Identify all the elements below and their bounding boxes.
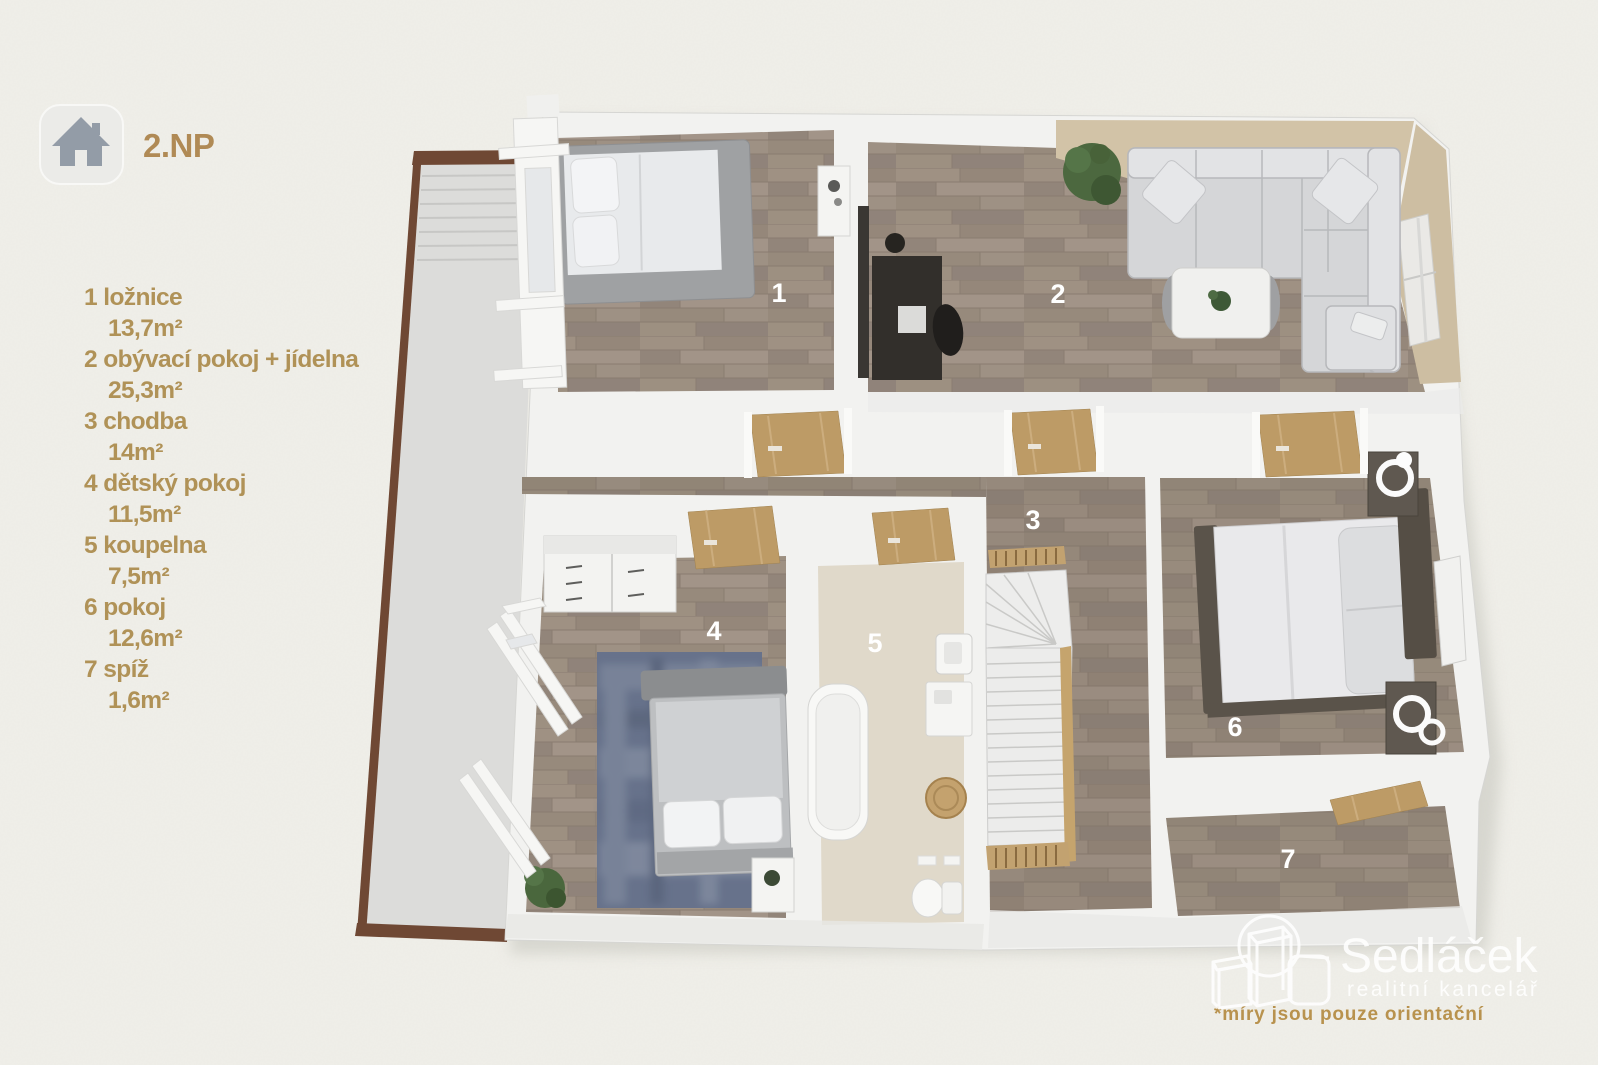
svg-text:6 pokoj: 6 pokoj: [84, 594, 166, 621]
svg-text:11,5m²: 11,5m²: [108, 501, 181, 528]
svg-text:1 ložnice: 1 ložnice: [84, 284, 182, 311]
svg-text:*míry jsou pouze orientační: *míry jsou pouze orientační: [1214, 1004, 1484, 1025]
svg-text:7,5m²: 7,5m²: [108, 563, 169, 590]
svg-text:2: 2: [1050, 279, 1065, 309]
svg-text:Sedláček: Sedláček: [1340, 930, 1538, 983]
svg-text:1: 1: [771, 278, 786, 308]
svg-text:2 obývací pokoj + jídelna: 2 obývací pokoj + jídelna: [84, 346, 359, 373]
svg-text:7: 7: [1280, 844, 1295, 874]
svg-text:2.NP: 2.NP: [143, 127, 214, 164]
svg-text:realitní kancelář: realitní kancelář: [1347, 978, 1539, 1001]
svg-text:12,6m²: 12,6m²: [108, 625, 182, 652]
svg-text:5 koupelna: 5 koupelna: [84, 532, 207, 559]
svg-text:5: 5: [867, 628, 882, 658]
svg-text:1,6m²: 1,6m²: [108, 687, 169, 714]
svg-text:14m²: 14m²: [108, 439, 163, 466]
svg-text:25,3m²: 25,3m²: [108, 377, 182, 404]
svg-text:7 spíž: 7 spíž: [84, 656, 149, 683]
svg-text:13,7m²: 13,7m²: [108, 315, 182, 342]
svg-text:4: 4: [706, 616, 721, 646]
svg-text:3: 3: [1025, 505, 1040, 535]
svg-text:6: 6: [1227, 712, 1242, 742]
svg-text:4 dětský pokoj: 4 dětský pokoj: [84, 470, 246, 497]
svg-text:3 chodba: 3 chodba: [84, 408, 188, 435]
